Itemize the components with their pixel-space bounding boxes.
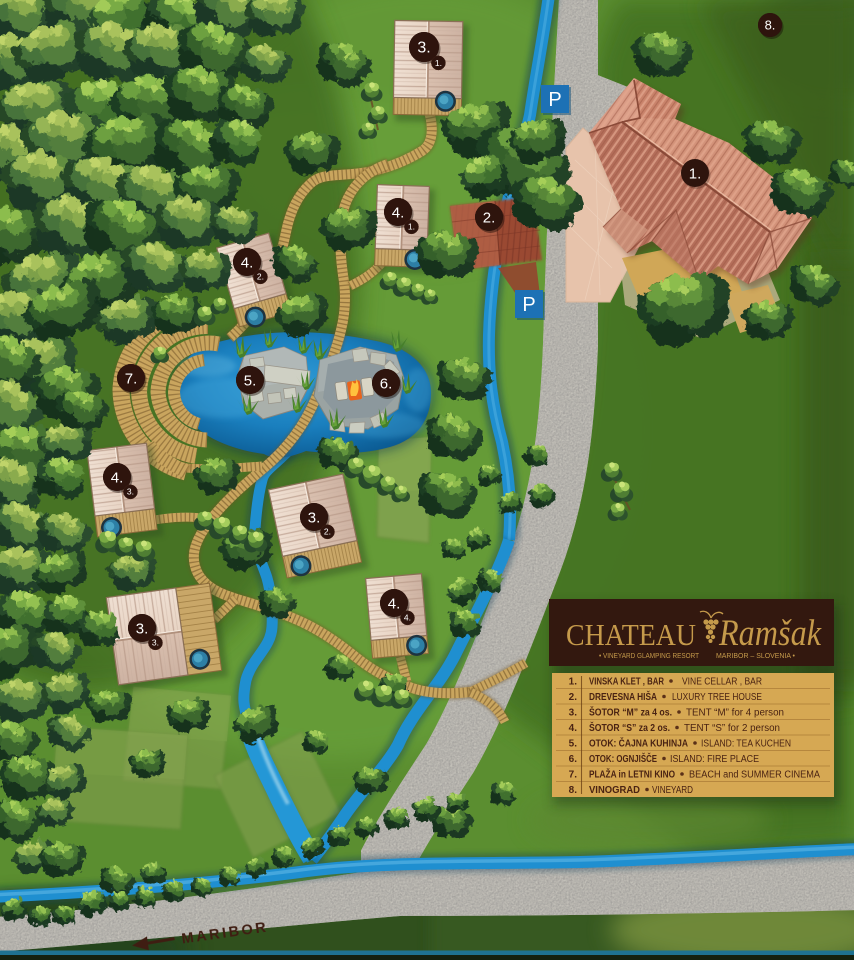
svg-text:LUXURY TREE HOUSE: LUXURY TREE HOUSE — [672, 692, 762, 703]
svg-text:2.: 2. — [483, 209, 496, 226]
svg-text:4.: 4. — [111, 469, 124, 486]
svg-text:TENT “M” for 4 person: TENT “M” for 4 person — [686, 707, 784, 718]
svg-text:6.: 6. — [569, 754, 578, 765]
svg-text:6.: 6. — [380, 375, 393, 392]
svg-text:8.: 8. — [569, 785, 578, 796]
svg-text:4.: 4. — [241, 254, 254, 271]
svg-text:VINE CELLAR , BAR: VINE CELLAR , BAR — [682, 676, 762, 687]
svg-text:ISLAND: TEA KUCHEN: ISLAND: TEA KUCHEN — [701, 738, 791, 749]
svg-text:3.: 3. — [417, 40, 430, 57]
svg-text:3.: 3. — [127, 487, 134, 497]
svg-text:3.: 3. — [569, 707, 578, 718]
svg-text:ŠOTOR “M” za 4 os.: ŠOTOR “M” za 4 os. — [589, 705, 672, 718]
svg-text:VINOGRAD: VINOGRAD — [589, 785, 640, 796]
svg-text:PLAŽA in LETNI KINO: PLAŽA in LETNI KINO — [589, 767, 675, 780]
svg-text:VINEYARD: VINEYARD — [652, 785, 693, 796]
svg-text:MARIBOR – SLOVENIA •: MARIBOR – SLOVENIA • — [716, 651, 795, 660]
svg-text:2.: 2. — [569, 692, 578, 703]
svg-text:1.: 1. — [569, 676, 578, 687]
svg-text:1.: 1. — [435, 58, 442, 68]
svg-text:ISLAND: FIRE PLACE: ISLAND: FIRE PLACE — [670, 754, 759, 765]
svg-text:CHATEAU: CHATEAU — [566, 617, 696, 652]
svg-text:• VINEYARD GLAMPING RESORT: • VINEYARD GLAMPING RESORT — [599, 651, 699, 660]
svg-text:OTOK: ČAJNA KUHINJA: OTOK: ČAJNA KUHINJA — [589, 736, 688, 749]
svg-text:5.: 5. — [569, 738, 578, 749]
svg-text:7.: 7. — [569, 769, 578, 780]
svg-text:OTOK: OGNJIŠČE: OTOK: OGNJIŠČE — [589, 752, 657, 765]
svg-text:3.: 3. — [152, 638, 159, 648]
svg-text:4.: 4. — [392, 204, 405, 221]
svg-text:2.: 2. — [257, 272, 264, 282]
svg-text:BEACH and SUMMER CINEMA: BEACH and SUMMER CINEMA — [689, 769, 820, 780]
svg-text:3.: 3. — [136, 620, 149, 637]
svg-text:4.: 4. — [404, 613, 411, 623]
svg-text:P: P — [522, 294, 535, 316]
svg-text:ŠOTOR “S” za 2 os.: ŠOTOR “S” za 2 os. — [589, 721, 670, 734]
svg-text:8.: 8. — [765, 18, 776, 33]
svg-text:VINSKA KLET , BAR: VINSKA KLET , BAR — [589, 676, 665, 687]
svg-text:TENT “S” for 2 person: TENT “S” for 2 person — [684, 723, 780, 734]
svg-text:Ramšak: Ramšak — [718, 613, 821, 654]
svg-text:4.: 4. — [388, 595, 401, 612]
svg-text:1.: 1. — [689, 165, 702, 182]
svg-text:5.: 5. — [244, 372, 257, 389]
svg-text:P: P — [548, 89, 561, 111]
svg-text:4.: 4. — [569, 723, 578, 734]
svg-text:7.: 7. — [125, 370, 138, 387]
svg-text:3.: 3. — [308, 509, 321, 526]
svg-text:1.: 1. — [408, 222, 415, 232]
svg-text:DREVESNA HIŠA: DREVESNA HIŠA — [589, 690, 657, 703]
svg-text:2.: 2. — [324, 527, 331, 537]
